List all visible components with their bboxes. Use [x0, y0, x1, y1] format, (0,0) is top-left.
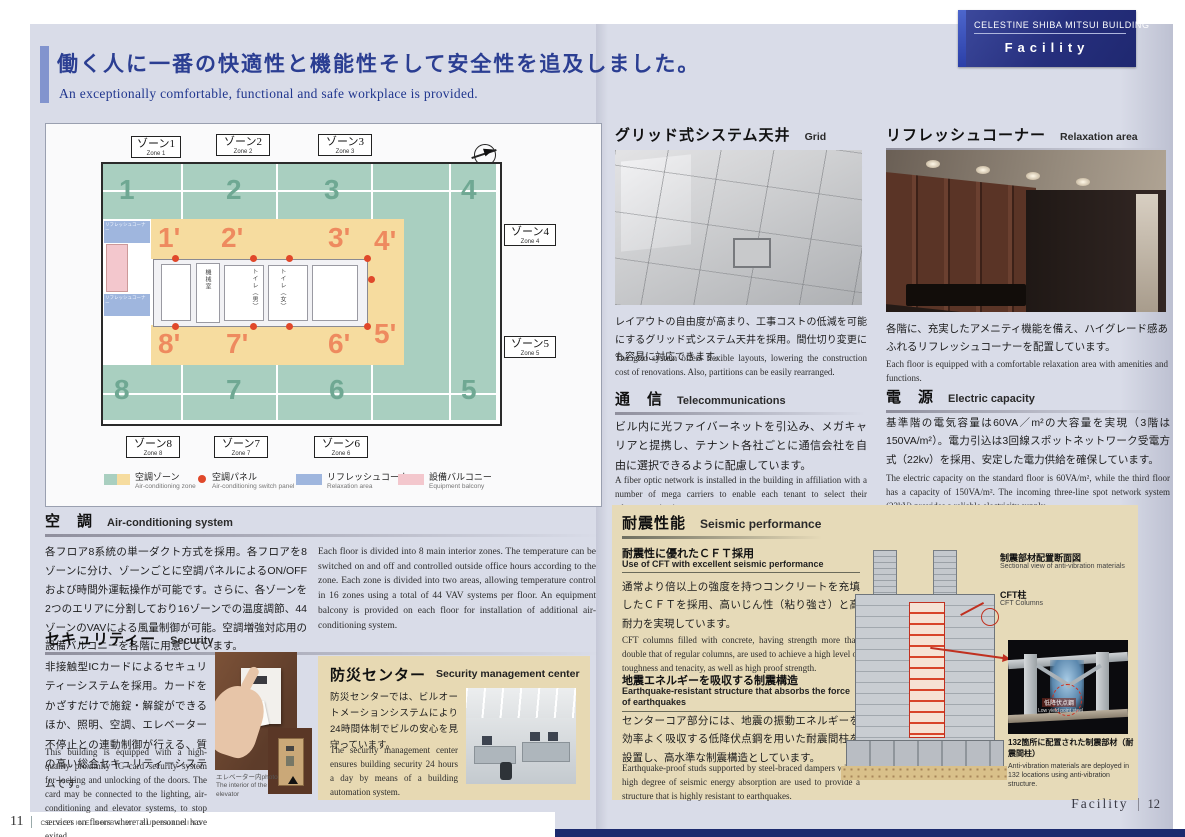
ac-switch-dot — [364, 323, 371, 330]
page-subtitle: An exceptionally comfortable, functional… — [59, 86, 478, 102]
ac-switch-dot — [250, 323, 257, 330]
orange-zone-top — [151, 219, 404, 259]
zone-number: 4 — [461, 176, 477, 204]
seismic-body1-en: CFT columns filled with concrete, having… — [622, 634, 860, 676]
heading-seismic: 耐震性能Seismic performance — [622, 512, 822, 539]
damper-photo: 低降伏点鋼 Low yield point steel — [1008, 640, 1128, 734]
zone-number: 5' — [374, 320, 396, 348]
zone-number: 2' — [221, 224, 243, 252]
steel-label-en: Low yield point steel — [1038, 708, 1083, 714]
page-number-right: 12 — [1148, 797, 1161, 812]
heading-disaster-center-en: Security management center — [436, 668, 580, 680]
zone-number: 4' — [374, 227, 396, 255]
telecom-text-jp: ビル内に光ファイバーネットを引込み、メガキャリアと提携し、テナント各社ごとに通信… — [615, 418, 867, 476]
zone-label-6: ゾーン6 Zone 6 — [314, 436, 368, 458]
zone-label-8: ゾーン8 Zone 8 — [126, 436, 180, 458]
bottom-navy-bar — [555, 829, 1185, 837]
floor-plan-panel: ゾーン1 Zone 1 ゾーン2 Zone 2 ゾーン3 Zone 3 — [45, 123, 602, 507]
zone-label-2: ゾーン2 Zone 2 — [216, 134, 270, 156]
facility-header-box: CELESTINE SHIBA MITSUI BUILDING Facility — [958, 10, 1136, 67]
relaxation-text-jp: 各階に、充実したアメニティ機能を備え、ハイグレード感あふれるリフレッシュコーナー… — [886, 320, 1168, 357]
footer-left: 11 CELESTINE SHIBA MITSUI BUILDING — [10, 814, 204, 830]
ac-switch-dot — [286, 323, 293, 330]
seismic-sub2-en: Earthquake-resistant structure that abso… — [622, 686, 860, 712]
page-title: 働く人に一番の快適性と機能性そして安全性を追及しました。 — [57, 48, 700, 78]
ac-switch-dot — [368, 276, 375, 283]
relaxation-photo — [886, 150, 1166, 312]
ac-switch-dot — [364, 255, 371, 262]
building-section-diagram — [855, 550, 995, 790]
header-section-label: Facility — [958, 40, 1136, 55]
ac-switch-dot — [172, 323, 179, 330]
legend-ac-panel: 空調パネルAir-conditioning switch panel — [198, 472, 294, 490]
zone-number: 1' — [158, 224, 180, 252]
seismic-sub1-en: Use of CFT with excellent seismic perfor… — [622, 559, 860, 573]
heading-disaster-center-jp: 防災センター — [330, 664, 426, 685]
seismic-body1-jp: 通常より倍以上の強度を持つコンクリートを充填したＣＦＴを採用、高いじん性（粘り強… — [622, 578, 860, 633]
ac-switch-dot — [250, 255, 257, 262]
zone-number: 5 — [461, 376, 477, 404]
ceiling-photo — [615, 150, 862, 305]
legend-swatch-relax — [296, 474, 322, 485]
heading-telecom: 通 信Telecommunications — [615, 388, 865, 415]
page-background-extension — [555, 812, 1173, 829]
air-conditioning-text-en: Each floor is divided into 8 main interi… — [318, 545, 596, 633]
footer-facility-label: Facility — [1071, 796, 1128, 812]
zone-number: 2 — [226, 176, 242, 204]
damper-caption-jp: 132箇所に配置された制震部材（耐震間柱） — [1008, 738, 1134, 760]
legend-dot-ac-panel — [198, 475, 206, 483]
heading-air-conditioning: 空 調Air-conditioning system — [45, 510, 600, 537]
zone-number: 1 — [119, 176, 135, 204]
brochure-spread: CELESTINE SHIBA MITSUI BUILDING Facility… — [0, 0, 1185, 837]
header-accent-stripe — [958, 10, 966, 67]
damper-caption-en: Anti-vibration materials are deployed in… — [1008, 762, 1134, 789]
security-center-photo — [466, 688, 576, 784]
zone-label-7: ゾーン7 Zone 7 — [214, 436, 268, 458]
seismic-body2-en: Earthquake-proof studs supported by stee… — [622, 762, 860, 804]
orange-zone-bottom — [151, 325, 404, 365]
refresh-corner-area-2: リフレッシュコーナー — [104, 294, 150, 316]
zone-number: 7 — [226, 376, 242, 404]
zone-number: 6' — [328, 330, 350, 358]
zone-number: 6 — [329, 376, 345, 404]
cft-callout-circle — [981, 608, 999, 626]
heading-relaxation: リフレッシュコーナーRelaxation area — [886, 124, 1166, 151]
footer-right: Facility 12 — [1000, 796, 1160, 812]
refresh-corner-area-1: リフレッシュコーナー — [104, 221, 150, 243]
zone-number: 3' — [328, 224, 350, 252]
toilet-f-label: トイレ（女） — [278, 268, 287, 310]
zone-label-5: ゾーン5 Zone 5 — [504, 336, 556, 358]
legend-swatch-ac-zone — [104, 474, 130, 485]
diagram-label2-en: CFT Columns — [1000, 600, 1043, 608]
zone-number: 8' — [158, 330, 180, 358]
diagram-label1-en: Sectional view of anti-vibration materia… — [1000, 563, 1130, 571]
grid-ceiling-text-en: The grid system offers flexible layouts,… — [615, 352, 867, 380]
cft-core-highlight — [909, 602, 945, 738]
zone-number: 3 — [324, 176, 340, 204]
machine-room-label: 機械室 — [203, 269, 212, 290]
ac-switch-dot — [286, 255, 293, 262]
elevator-photo-caption: エレベーター内photo The interior of the elevato… — [216, 774, 286, 799]
caption-triangle-icon — [288, 776, 298, 784]
toilet-m-label: トイレ（男） — [250, 268, 259, 310]
legend-balcony: 設備バルコニーEquipment balcony — [398, 472, 492, 490]
heading-electric: 電 源Electric capacity — [886, 386, 1168, 413]
legend-ac-zone: 空調ゾーンAir-conditioning zone — [104, 472, 196, 490]
footer-building-name: CELESTINE SHIBA MITSUI BUILDING — [40, 820, 203, 827]
title-accent-bar — [40, 46, 49, 103]
disaster-center-box: 防災センター Security management center 防災センター… — [318, 656, 590, 800]
seismic-body2-jp: センターコア部分には、地震の振動エネルギーを効率よく吸収する低降伏点鋼を用いた耐… — [622, 712, 860, 767]
heading-security: セキュリティーSecurity — [45, 628, 600, 655]
ac-switch-dot — [172, 255, 179, 262]
header-building-name: CELESTINE SHIBA MITSUI BUILDING — [974, 20, 1126, 34]
zone-label-1: ゾーン1 Zone 1 — [131, 136, 181, 158]
zone-label-4: ゾーン4 Zone 4 — [504, 224, 556, 246]
zone-number: 8 — [114, 376, 130, 404]
disaster-center-text-en: The security management center ensures b… — [330, 744, 458, 800]
equipment-balcony-area — [106, 244, 128, 292]
legend-swatch-balcony — [398, 474, 424, 485]
zone-number: 7' — [226, 330, 248, 358]
steel-label-jp: 低降伏点鋼 — [1042, 698, 1076, 707]
relaxation-text-en: Each floor is equipped with a comfortabl… — [886, 358, 1168, 386]
page-number-left: 11 — [10, 814, 23, 830]
zone-label-3: ゾーン3 Zone 3 — [318, 134, 372, 156]
electric-text-jp: 基準階の電気容量は60VA／m²の大容量を実現（3階は150VA/m²）。電力引… — [886, 414, 1170, 469]
